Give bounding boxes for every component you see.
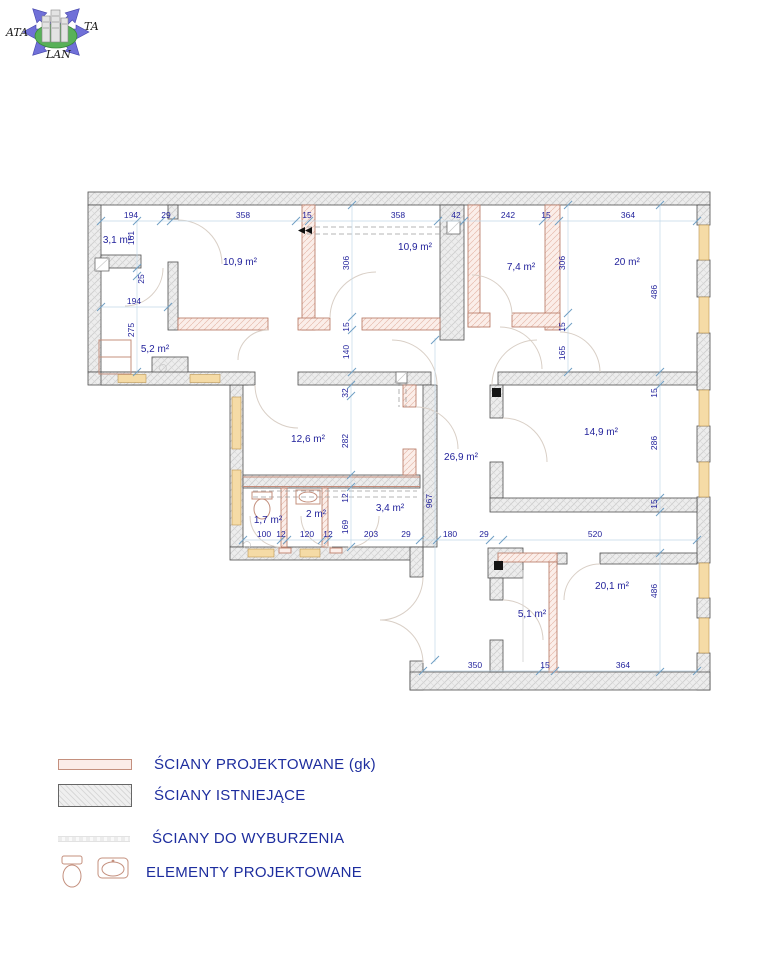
- room-label: 5,2 m²: [141, 344, 170, 355]
- dimension-label: 29: [161, 210, 171, 220]
- dimension-label: 25: [136, 274, 146, 284]
- doors: [125, 220, 600, 663]
- dimension-label: 358: [391, 210, 405, 220]
- legend-label: ŚCIANY DO WYBURZENIA: [152, 830, 344, 847]
- dimension-label: 15: [557, 322, 567, 332]
- existing-wall-swatch: [58, 784, 132, 807]
- dimension-label: 967: [424, 494, 434, 508]
- dimension-label: 12: [340, 493, 350, 503]
- dimension-lines: [97, 201, 701, 676]
- dimension-label: 194: [124, 210, 138, 220]
- room-label: 5,1 m²: [518, 609, 547, 620]
- room-label: 14,9 m²: [584, 427, 619, 438]
- demolition-wall-swatch: [58, 836, 130, 842]
- dimension-label: 282: [340, 434, 350, 448]
- legend-label: ŚCIANY PROJEKTOWANE (gk): [154, 756, 376, 773]
- dimension-label: 169: [340, 520, 350, 534]
- column-marker: [494, 561, 503, 570]
- room-label: 3,4 m²: [376, 503, 405, 514]
- dimension-label: 364: [621, 210, 635, 220]
- dimension-label: 32: [340, 388, 350, 398]
- room-label: 20 m²: [614, 257, 640, 268]
- kitchen-unit-icon: [99, 340, 131, 374]
- room-label: 26,9 m²: [444, 452, 479, 463]
- room-label: 10,9 m²: [223, 257, 258, 268]
- dimension-label: 486: [649, 285, 659, 299]
- dimension-label: 286: [649, 436, 659, 450]
- dimension-label: 486: [649, 584, 659, 598]
- dimension-labels: 1942935815358422421536416125194275306151…: [124, 210, 659, 670]
- legend-row-projected-elements: ELEMENTY PROJEKTOWANE: [58, 854, 362, 890]
- dimension-label: 242: [501, 210, 515, 220]
- legend-label: ELEMENTY PROJEKTOWANE: [146, 864, 362, 881]
- sink-icon: [296, 490, 320, 504]
- dimension-label: 120: [300, 529, 314, 539]
- dimension-label: 15: [540, 660, 550, 670]
- dimension-label: 15: [541, 210, 551, 220]
- dimension-label: 180: [443, 529, 457, 539]
- dimension-label: 15: [302, 210, 312, 220]
- dimension-label: 15: [649, 499, 659, 509]
- room-label: 7,4 m²: [507, 262, 536, 273]
- dimension-label: 100: [257, 529, 271, 539]
- room-label: 1,7 m²: [254, 515, 283, 526]
- room-label: 12,6 m²: [291, 434, 326, 445]
- dimension-label: 165: [557, 346, 567, 360]
- dimension-label: 358: [236, 210, 250, 220]
- dimension-label: 15: [649, 388, 659, 398]
- dimension-label: 364: [616, 660, 630, 670]
- column-marker: [492, 388, 501, 397]
- dimension-label: 306: [341, 256, 351, 270]
- dimension-label: 140: [341, 345, 351, 359]
- entry-door-arc: [380, 577, 423, 620]
- dimension-label: 12: [276, 529, 286, 539]
- dimension-label: 42: [451, 210, 461, 220]
- floor-plan-page: ATA TA LAN: [0, 0, 768, 972]
- legend-row-demolition-walls: ŚCIANY DO WYBURZENIA: [58, 830, 344, 847]
- entry-door-arc: [380, 620, 423, 663]
- room-label: 10,9 m²: [398, 242, 433, 253]
- demolition-arrow-icon: [298, 227, 305, 234]
- legend-toilet-icon: [58, 854, 88, 890]
- legend-sink-icon: [96, 856, 130, 882]
- legend-row-existing-walls: ŚCIANY ISTNIEJĄCE: [58, 784, 306, 807]
- dimension-label: 275: [126, 323, 136, 337]
- dimension-label: 12: [323, 529, 333, 539]
- dimension-label: 306: [557, 256, 567, 270]
- dimension-label: 203: [364, 529, 378, 539]
- legend-row-projected-walls: ŚCIANY PROJEKTOWANE (gk): [58, 756, 376, 773]
- dimension-label: 29: [401, 529, 411, 539]
- room-label: 2 m²: [306, 509, 327, 520]
- dimension-label: 15: [341, 322, 351, 332]
- floor-plan-drawing: 1942935815358422421536416125194275306151…: [0, 0, 768, 972]
- legend-label: ŚCIANY ISTNIEJĄCE: [154, 787, 306, 804]
- dimension-label: 520: [588, 529, 602, 539]
- room-label: 3,1 m²: [103, 235, 132, 246]
- dimension-label: 194: [127, 296, 141, 306]
- room-label: 20,1 m²: [595, 581, 630, 592]
- projected-wall-swatch: [58, 759, 132, 770]
- dimension-label: 350: [468, 660, 482, 670]
- dimension-label: 29: [479, 529, 489, 539]
